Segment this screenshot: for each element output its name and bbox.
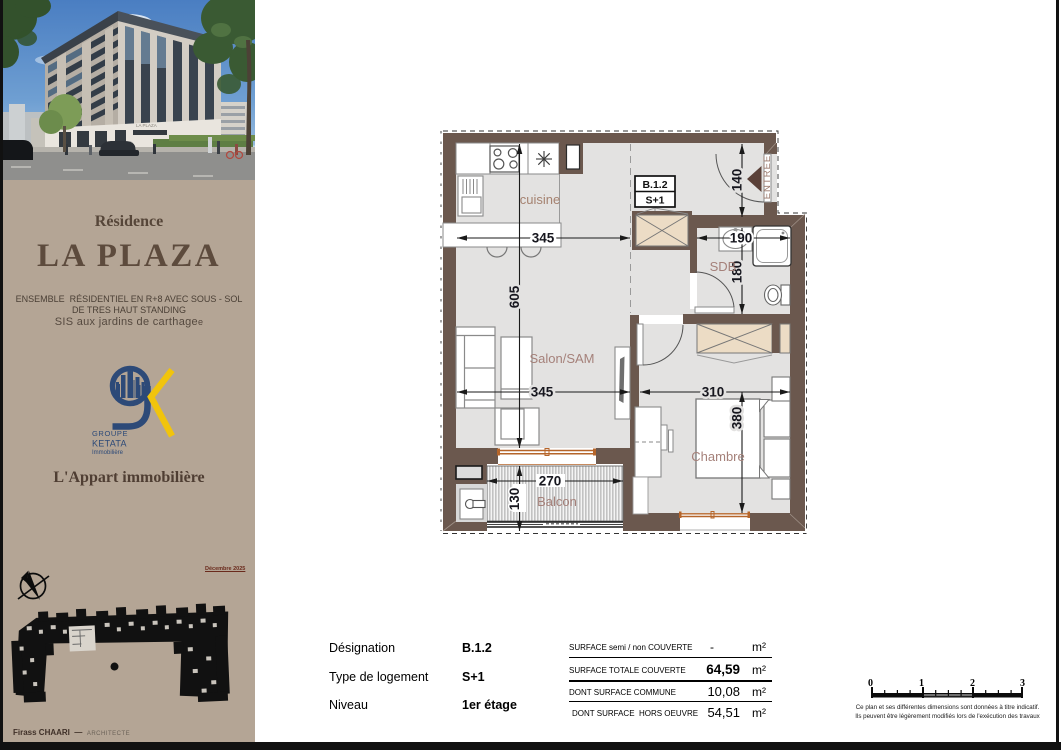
svg-text:605: 605 [507,285,522,308]
svg-text:ENTREE: ENTREE [762,155,773,200]
svg-text:140: 140 [730,169,745,192]
svg-text:Balcon: Balcon [537,494,577,509]
svg-text:345: 345 [531,385,554,400]
svg-text:Chambre: Chambre [691,449,744,464]
svg-text:130: 130 [507,488,522,511]
svg-text:190: 190 [730,231,753,246]
svg-text:380: 380 [730,407,745,430]
svg-text:cuisine: cuisine [520,192,560,207]
svg-text:B.1.2: B.1.2 [642,179,667,191]
svg-text:S+1: S+1 [646,195,665,207]
svg-text:310: 310 [702,385,725,400]
svg-text:SDB: SDB [710,259,737,274]
svg-text:Salon/SAM: Salon/SAM [529,351,594,366]
svg-text:270: 270 [539,474,562,489]
svg-text:345: 345 [532,231,555,246]
